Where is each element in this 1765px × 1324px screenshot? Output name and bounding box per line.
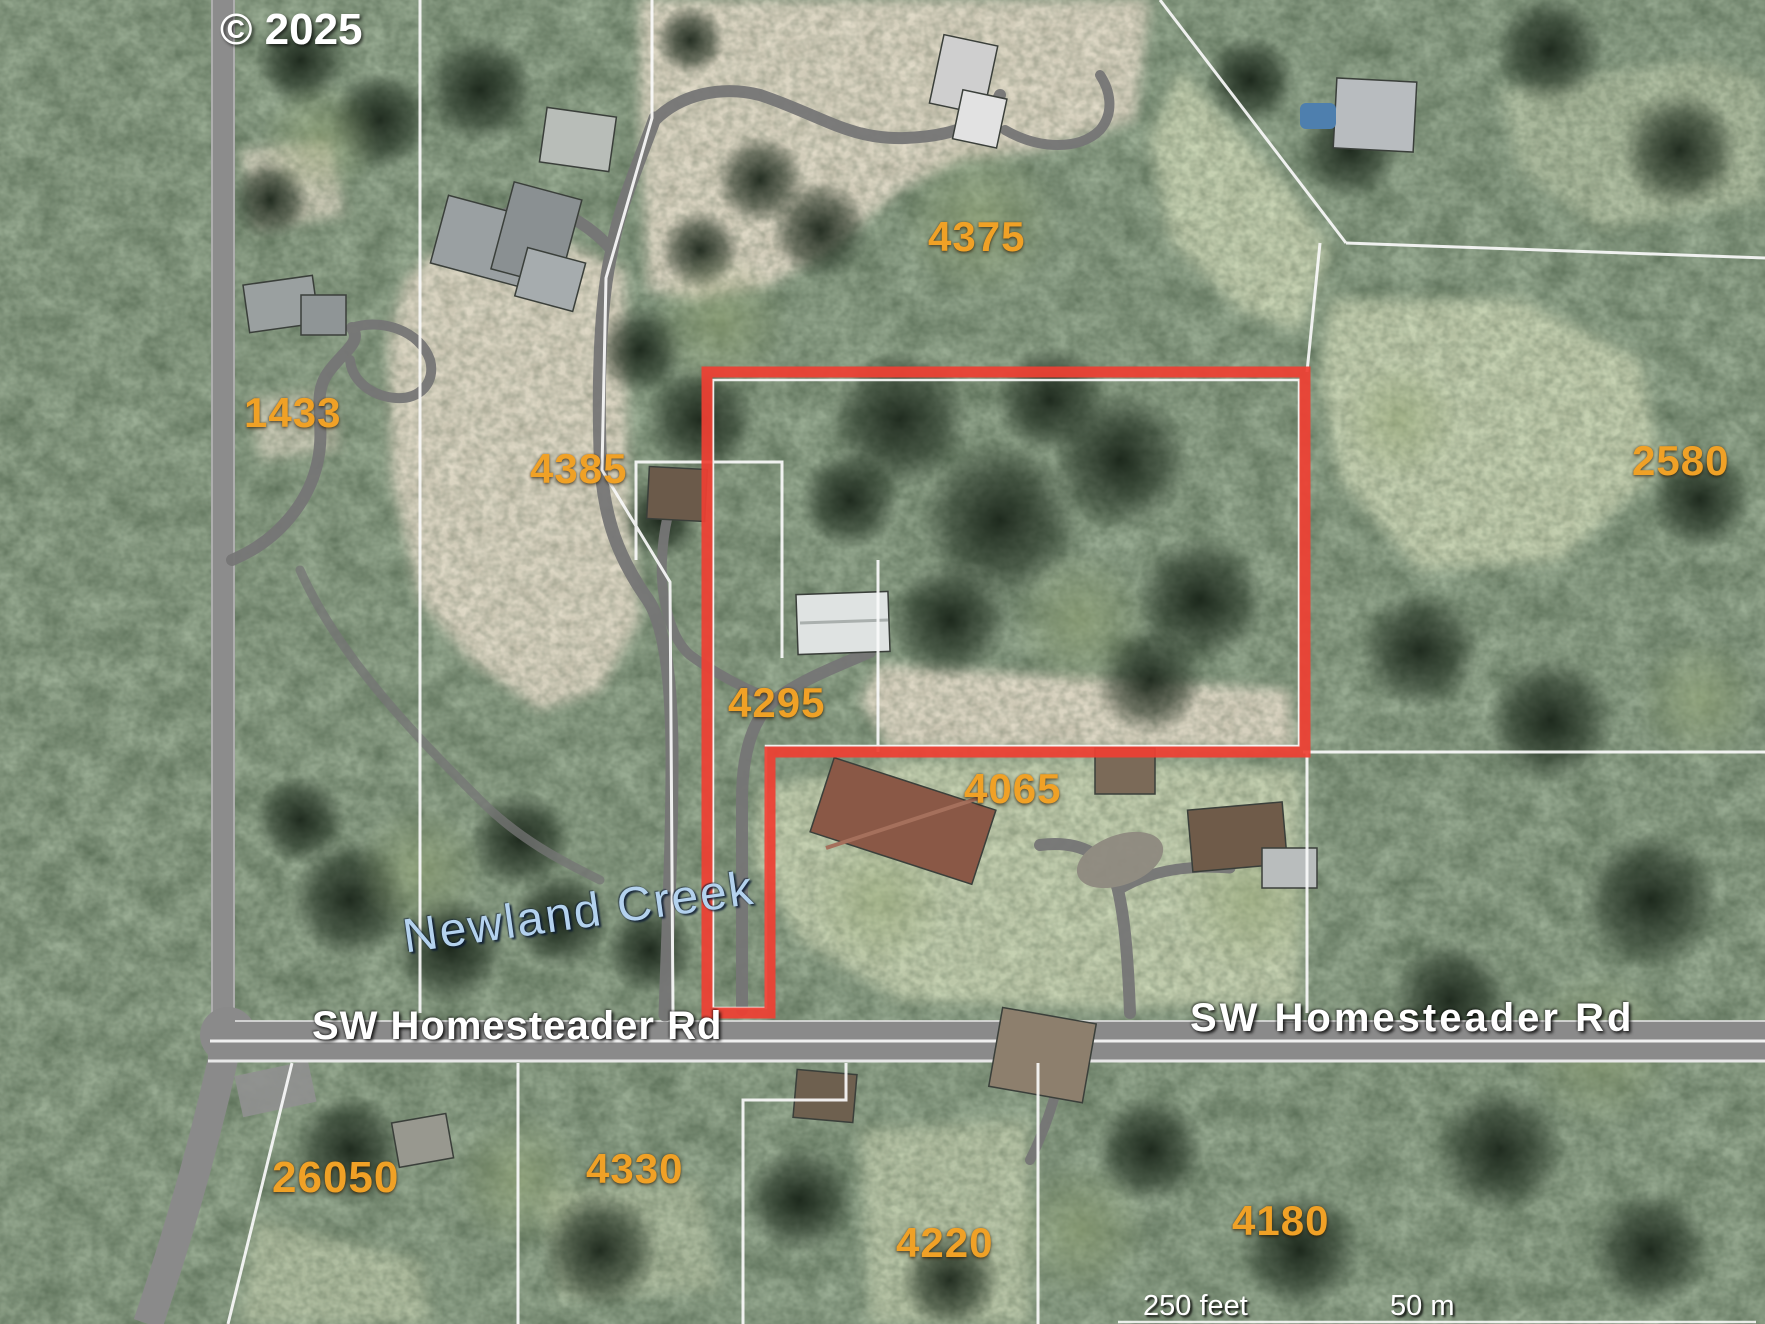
parcel-label-4375: 4375 bbox=[928, 216, 1025, 258]
parcel-label-1433: 1433 bbox=[244, 392, 341, 434]
parcel-label-4295: 4295 bbox=[728, 682, 825, 724]
parcel-label-4385: 4385 bbox=[530, 448, 627, 490]
road-label-sw-homesteader-rd-west: SW Homesteader Rd bbox=[312, 1006, 722, 1046]
parcel-label-4220: 4220 bbox=[896, 1222, 993, 1264]
parcel-label-26050: 26050 bbox=[272, 1156, 399, 1200]
copyright-attribution: © 2025 bbox=[220, 8, 363, 52]
parcel-label-4330: 4330 bbox=[586, 1148, 683, 1190]
road-label-sw-homesteader-rd-east: SW Homesteader Rd bbox=[1190, 998, 1634, 1038]
scale-label-feet: 250 feet bbox=[1143, 1292, 1248, 1321]
aerial-imagery bbox=[0, 0, 1765, 1324]
scale-label-meters: 50 m bbox=[1390, 1292, 1454, 1321]
parcel-label-2580: 2580 bbox=[1632, 440, 1729, 482]
aerial-map-canvas[interactable]: © 2025 4375 4385 1433 2580 4295 4065 260… bbox=[0, 0, 1765, 1324]
parcel-label-4180: 4180 bbox=[1232, 1200, 1329, 1242]
parcel-label-4065: 4065 bbox=[964, 768, 1061, 810]
